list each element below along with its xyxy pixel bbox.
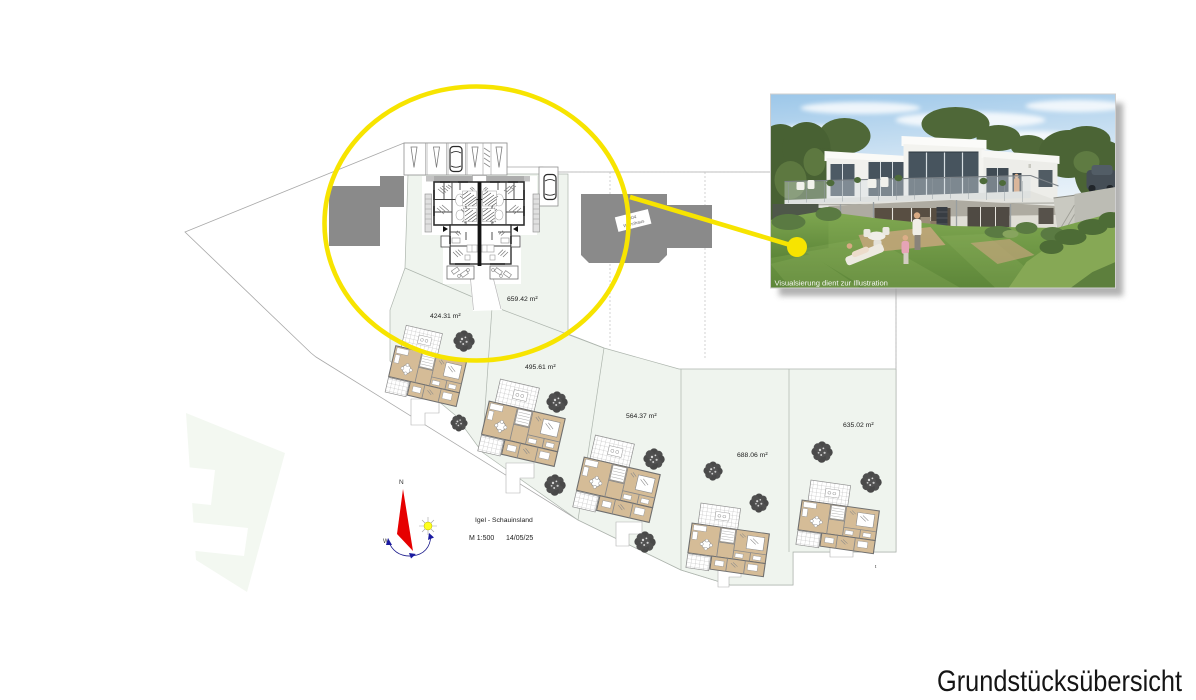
- svg-text:Grundstücksübersicht: Grundstücksübersicht: [937, 665, 1182, 698]
